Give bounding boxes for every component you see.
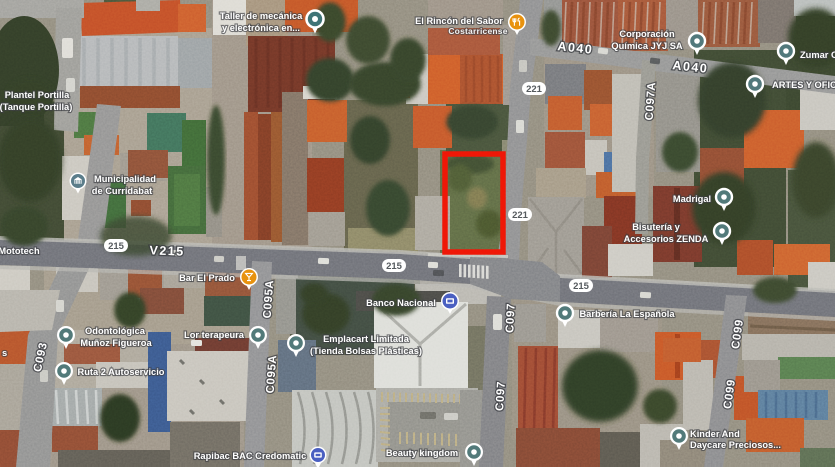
- svg-text:Mototech: Mototech: [0, 246, 40, 256]
- svg-text:V215: V215: [149, 243, 185, 258]
- svg-text:Plantel Portilla: Plantel Portilla: [5, 90, 70, 100]
- svg-text:221: 221: [526, 84, 543, 95]
- svg-text:Kinder And: Kinder And: [690, 429, 740, 439]
- svg-text:Muñoz Figueroa: Muñoz Figueroa: [80, 338, 152, 348]
- svg-text:Corporación: Corporación: [619, 29, 675, 39]
- svg-text:Zumar O: Zumar O: [800, 50, 835, 60]
- svg-text:Barbería La Española: Barbería La Española: [579, 309, 675, 319]
- svg-text:Ruta 2 Autoservicio: Ruta 2 Autoservicio: [78, 367, 165, 377]
- svg-text:Rapibac BAC Credomatic: Rapibac BAC Credomatic: [194, 451, 307, 461]
- svg-text:Daycare Preciosos...: Daycare Preciosos...: [690, 440, 781, 450]
- svg-text:Lor terapeura: Lor terapeura: [184, 330, 245, 340]
- svg-text:Taller de mecánica: Taller de mecánica: [220, 11, 303, 21]
- svg-text:y electrónica en...: y electrónica en...: [222, 23, 300, 33]
- svg-text:Municipalidad: Municipalidad: [94, 174, 156, 184]
- svg-text:ARTES Y OFIC: ARTES Y OFIC: [772, 80, 835, 90]
- svg-text:215: 215: [108, 241, 125, 252]
- svg-text:Banco Nacional: Banco Nacional: [366, 298, 436, 308]
- svg-text:de Curridabat: de Curridabat: [92, 186, 152, 196]
- svg-text:Bisutería y: Bisutería y: [632, 222, 680, 232]
- svg-text:C097: C097: [494, 381, 508, 412]
- svg-text:Beauty kingdom: Beauty kingdom: [386, 448, 458, 458]
- svg-text:Madrigal: Madrigal: [673, 194, 711, 204]
- svg-text:(Tanque Portilla): (Tanque Portilla): [0, 102, 72, 112]
- svg-text:Bar El Prado: Bar El Prado: [179, 273, 235, 283]
- svg-text:215: 215: [573, 281, 590, 292]
- svg-text:215: 215: [386, 261, 403, 272]
- svg-text:(Tienda Bolsas Plásticas): (Tienda Bolsas Plásticas): [310, 346, 422, 356]
- svg-text:Emplacart Limitada: Emplacart Limitada: [323, 334, 410, 344]
- svg-text:221: 221: [512, 210, 529, 221]
- svg-text:s: s: [2, 348, 7, 358]
- svg-text:Costarricense: Costarricense: [448, 26, 507, 36]
- svg-text:Química JYJ SA: Química JYJ SA: [611, 41, 683, 51]
- svg-text:C097: C097: [504, 303, 518, 333]
- svg-text:El Rincón del Sabor: El Rincón del Sabor: [415, 16, 503, 26]
- svg-text:Accesorios ZENDA: Accesorios ZENDA: [624, 234, 709, 244]
- svg-text:Odontológica: Odontológica: [85, 326, 146, 336]
